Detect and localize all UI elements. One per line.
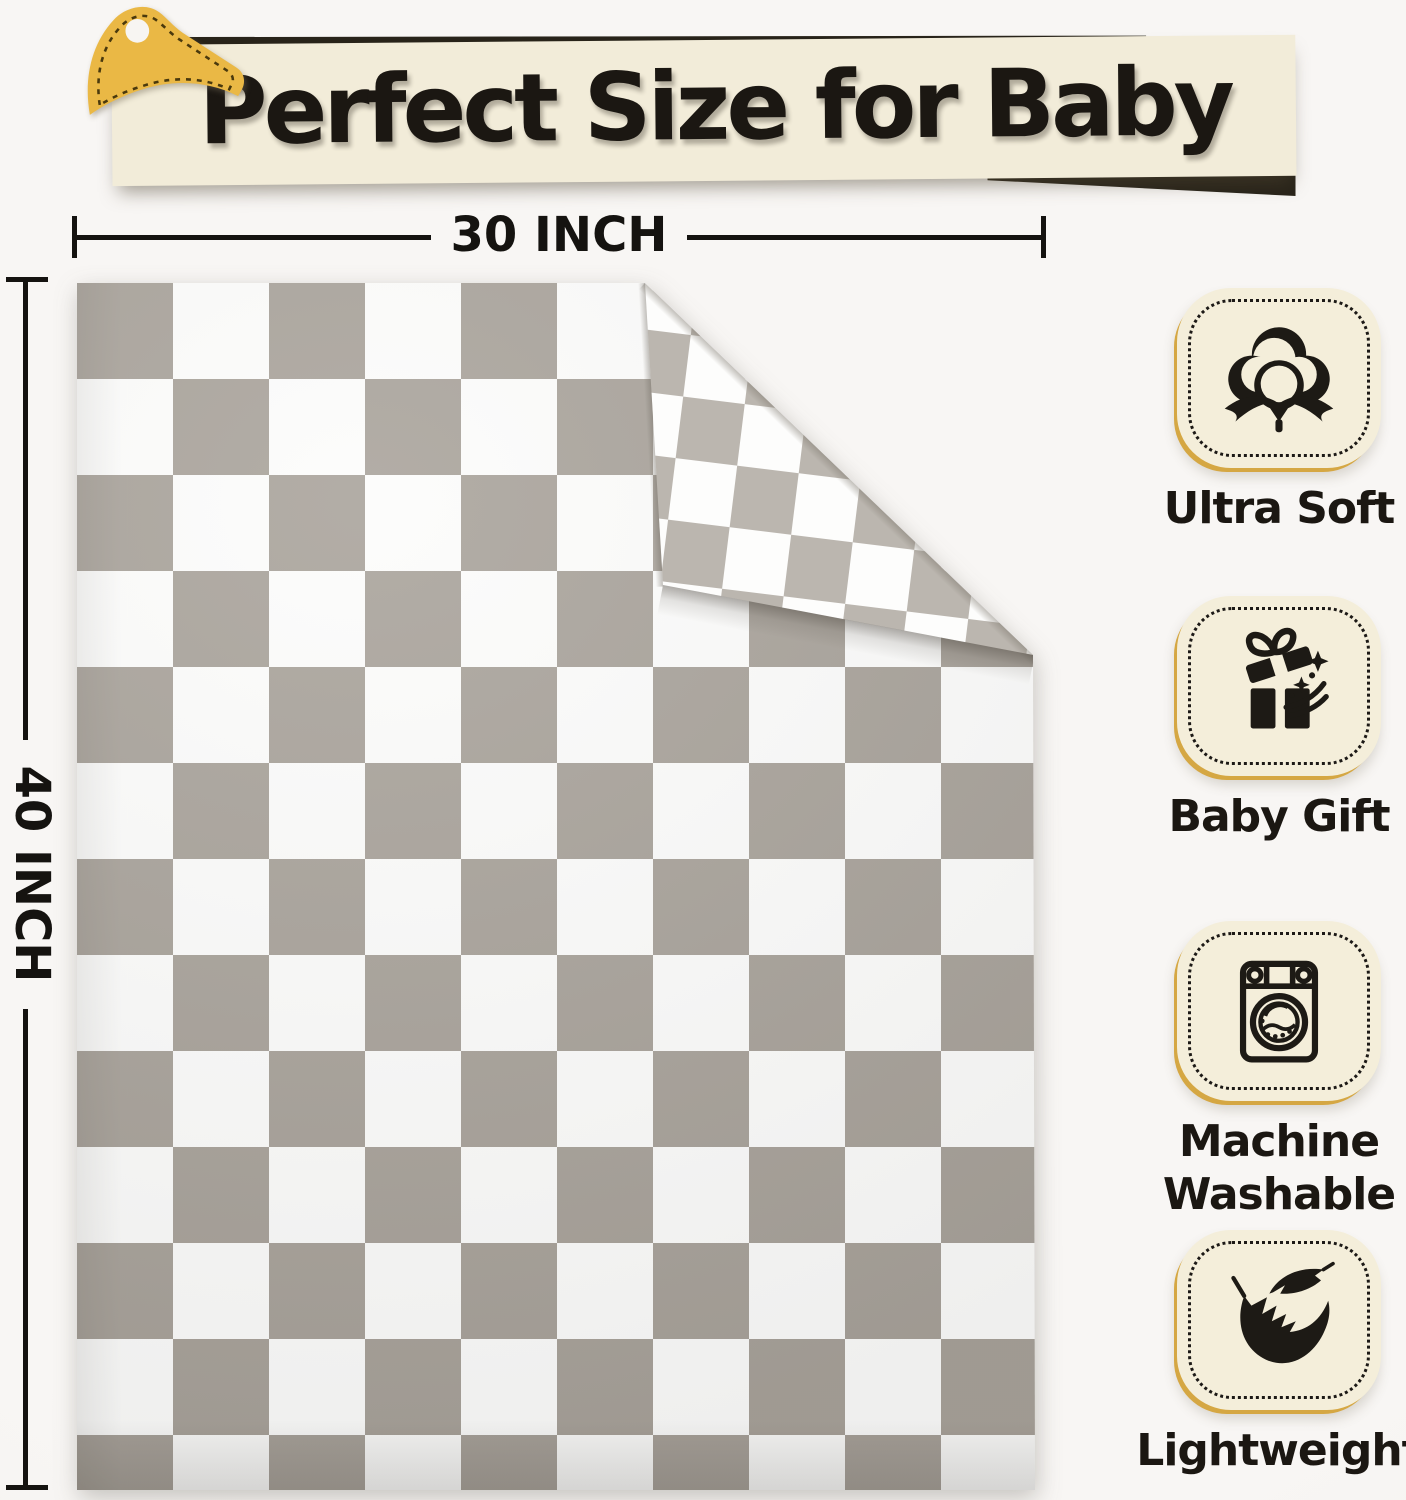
blanket-surface <box>77 283 1035 1490</box>
cotton-icon <box>1220 319 1338 437</box>
banner-face: Perfect Size for Baby <box>111 35 1296 186</box>
dimension-cap <box>6 1485 48 1490</box>
feature-baby-gift: Baby Gift <box>1149 596 1406 844</box>
width-dimension: 30 INCH <box>72 216 1046 258</box>
width-dimension-label: 30 INCH <box>431 207 688 263</box>
feature-badge <box>1177 921 1381 1101</box>
blanket-photo <box>77 283 1035 1490</box>
title-banner: Perfect Size for Baby <box>102 21 1300 223</box>
dimension-line <box>77 235 431 240</box>
feature-badge <box>1177 288 1381 468</box>
dimension-line <box>23 1009 28 1485</box>
feature-badge <box>1177 1230 1381 1410</box>
height-dimension: 40 INCH <box>6 277 50 1490</box>
product-infographic: Perfect Size for Baby 30 INCH 40 INCH <box>0 0 1406 1500</box>
dimension-cap <box>1041 216 1046 258</box>
washing-machine-icon <box>1217 949 1341 1073</box>
feathers-icon <box>1219 1260 1339 1380</box>
feature-ultra-soft: Ultra Soft <box>1149 288 1406 536</box>
feature-label: Lightweight <box>1136 1425 1406 1478</box>
feature-machine-washable: Machine Washable <box>1149 921 1406 1222</box>
feature-lightweight: Lightweight <box>1149 1230 1406 1478</box>
dimension-line <box>687 235 1041 240</box>
height-dimension-label: 40 INCH <box>4 766 60 983</box>
banner-title: Perfect Size for Baby <box>198 48 1231 166</box>
feature-badge <box>1177 596 1381 776</box>
blanket-shading <box>77 283 1035 1490</box>
feature-label: Baby Gift <box>1168 791 1389 844</box>
feature-label: Machine Washable <box>1149 1116 1406 1222</box>
feature-label: Ultra Soft <box>1164 483 1395 536</box>
dimension-line <box>23 282 28 740</box>
gold-clip-icon <box>80 0 248 122</box>
gift-box-icon <box>1220 627 1338 745</box>
